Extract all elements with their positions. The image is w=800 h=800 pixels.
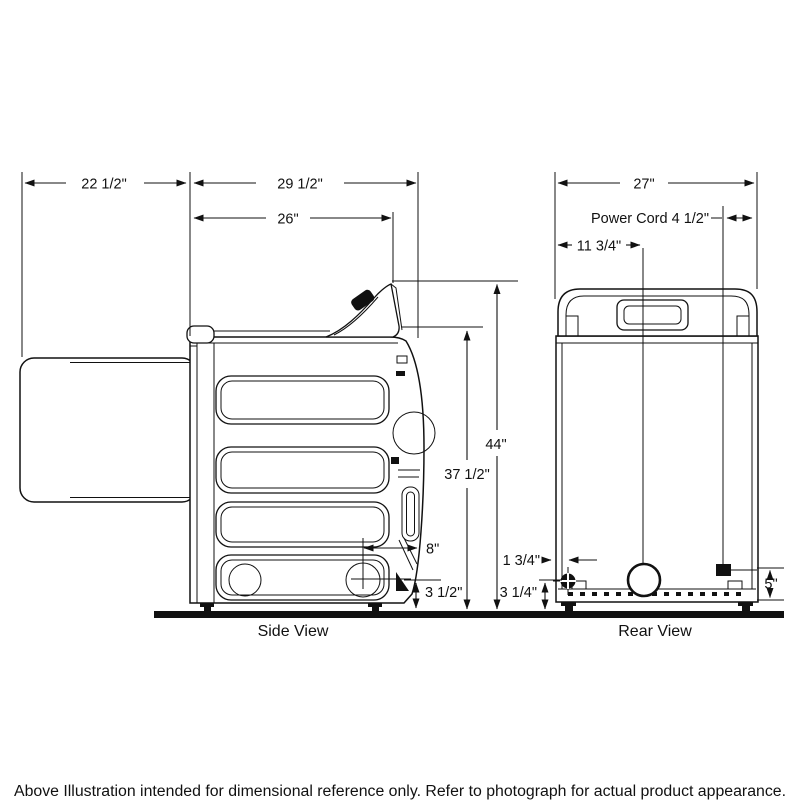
lid-lip	[187, 326, 214, 343]
control-console	[326, 284, 399, 337]
rear-handle-cutout	[617, 300, 688, 330]
dim-gas-offset: 1 3/4"	[503, 553, 540, 569]
footnote-text: Above Illustration intended for dimensio…	[14, 783, 786, 800]
dim-width: 27"	[633, 177, 654, 193]
side-view-drawing	[20, 284, 435, 612]
side-feet	[200, 603, 382, 612]
dim-vent-from-rear: 8"	[426, 542, 439, 558]
open-door	[20, 358, 196, 502]
dim-console-height: 44"	[485, 437, 506, 453]
floor-line	[154, 611, 784, 618]
rear-exhaust-vent	[628, 564, 660, 596]
dim-vent-height: 3 1/2"	[425, 585, 462, 601]
rear-feet	[561, 602, 753, 611]
rear-cabinet	[556, 336, 758, 602]
dim-gas-height: 3 1/4"	[500, 585, 537, 601]
side-panel-embossing	[216, 376, 411, 600]
dim-top-depth: 26"	[277, 212, 298, 228]
side-view-label: Side View	[258, 623, 329, 640]
rear-view-label: Rear View	[618, 623, 692, 640]
dim-power-cord: Power Cord 4 1/2"	[591, 211, 709, 227]
dim-door-depth: 22 1/2"	[81, 177, 126, 193]
rear-view-drawing	[553, 206, 758, 611]
dim-cord-height: 5"	[764, 577, 777, 593]
dim-lid-height: 37 1/2"	[444, 467, 489, 483]
dimension-diagram: 22 1/2" 29 1/2" 26" 27" Power Cord 4 1/2…	[0, 0, 800, 800]
dim-vent-offset: 11 3/4"	[577, 239, 621, 255]
power-cord-entry	[716, 564, 731, 576]
dim-overall-depth: 29 1/2"	[277, 177, 322, 193]
